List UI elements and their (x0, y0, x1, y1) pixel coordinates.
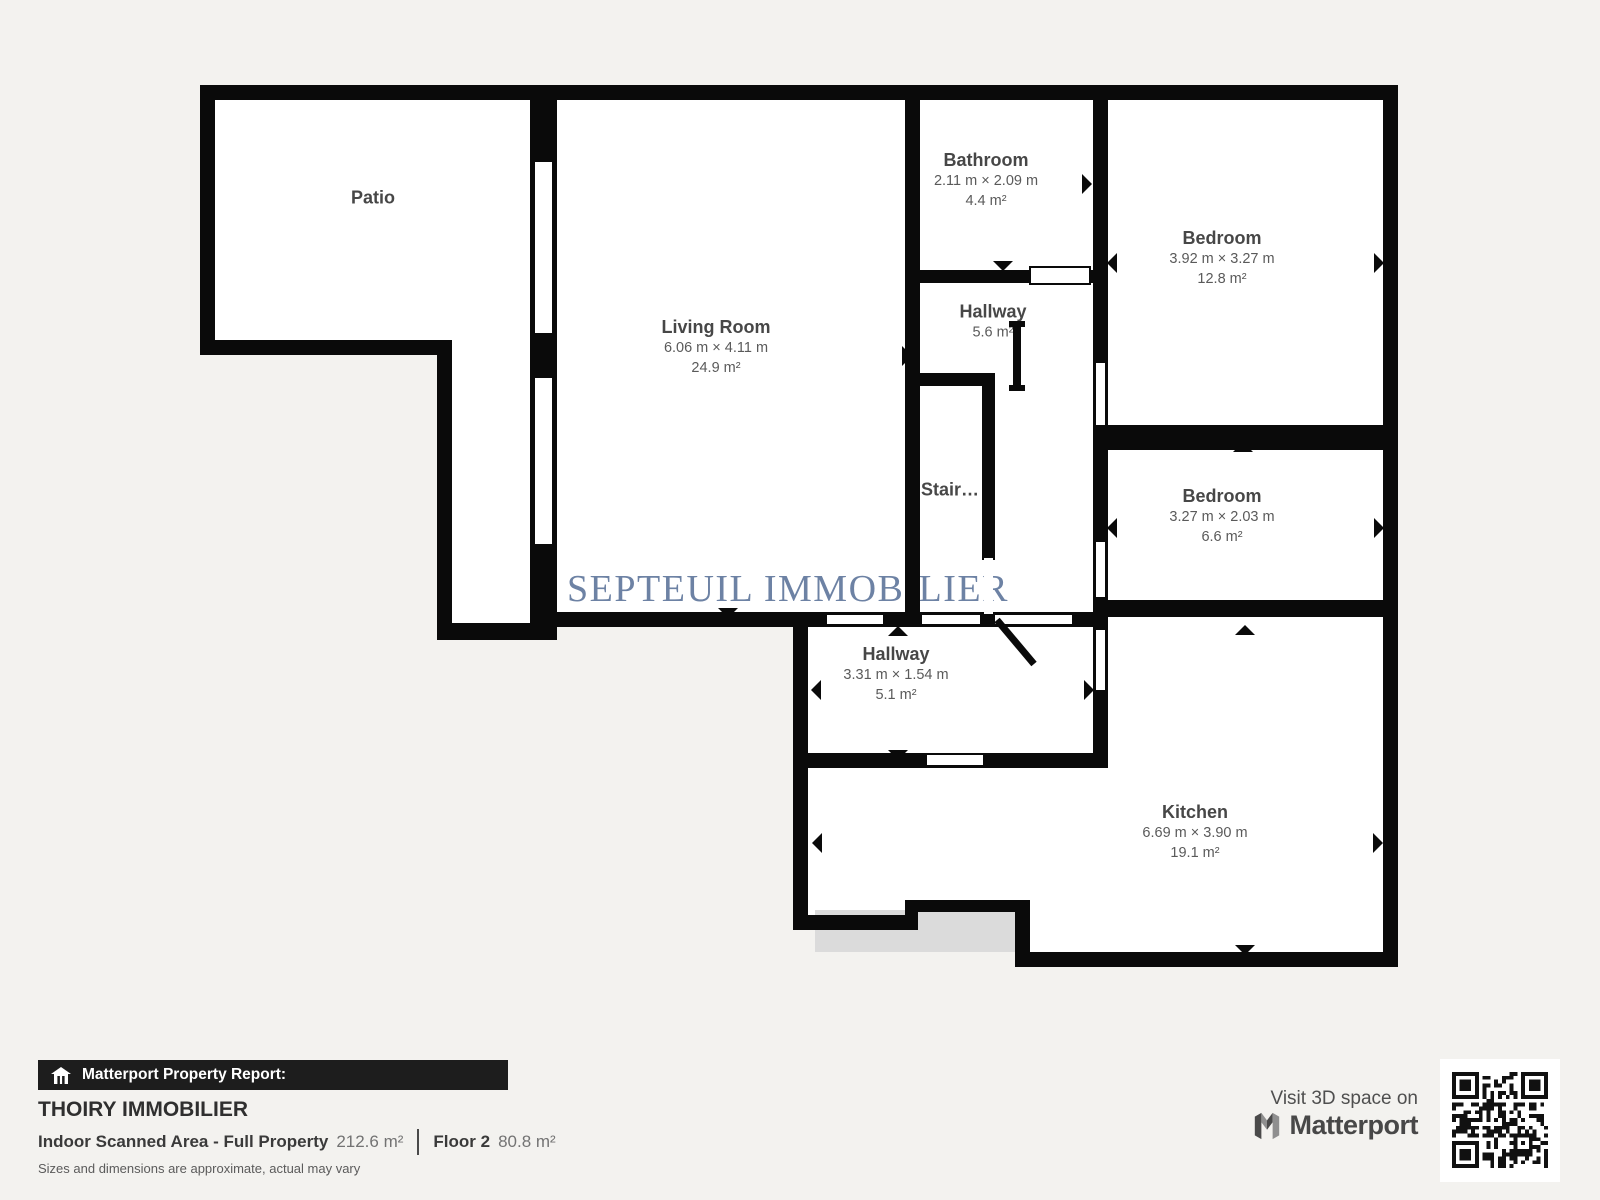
patio-extension-wall (437, 340, 452, 640)
hallway-south-door (927, 755, 983, 765)
hallway-west-wall (793, 612, 808, 930)
stairs-north-wall (905, 373, 995, 386)
room-label-bedroom-1: Bedroom 3.92 m × 3.27 m 12.8 m² (1169, 227, 1274, 289)
bedroom1-door (1096, 363, 1105, 425)
hallway-east-door (1096, 630, 1105, 690)
hallway-north-door (922, 615, 980, 624)
bedroom2-door (1096, 542, 1105, 597)
kitchen-step-wall-b (905, 900, 1030, 912)
watermark: SEPTEUIL IMMOBILIER (567, 568, 1009, 610)
kitchen-south-wall-right (1015, 952, 1398, 967)
door-leaf-icon (1009, 385, 1025, 391)
report-header-bar: Matterport Property Report: (38, 1060, 508, 1090)
stairs-door (984, 558, 993, 614)
exterior-wall-right (1383, 85, 1398, 967)
hallway-north-door (827, 615, 883, 624)
room-label-bathroom: Bathroom 2.11 m × 2.09 m 4.4 m² (934, 149, 1038, 211)
kitchen-south-wall-left (793, 915, 918, 930)
floor-label: Floor 2 (433, 1132, 490, 1152)
window (535, 378, 552, 544)
scanned-area-label: Indoor Scanned Area - Full Property (38, 1132, 328, 1152)
patio-wall-left (200, 85, 215, 355)
exterior-wall-top (200, 85, 1398, 100)
area-stats: Indoor Scanned Area - Full Property 212.… (38, 1129, 556, 1155)
property-name: THOIRY IMMOBILIER (38, 1098, 248, 1122)
patio-wall-bottom (200, 340, 452, 355)
room-label-patio: Patio (351, 186, 395, 209)
hallway-swing-door-opening (995, 615, 1072, 624)
qr-code[interactable] (1440, 1059, 1560, 1182)
room-label-stairs: Stair… (921, 478, 979, 501)
floor-area-value: 80.8 m² (498, 1132, 556, 1152)
door-leaf-icon (1009, 321, 1025, 327)
room-label-hallway-lower: Hallway 3.31 m × 1.54 m 5.1 m² (843, 643, 948, 705)
scanned-area-value: 212.6 m² (336, 1132, 403, 1152)
door-leaf-icon (1013, 325, 1021, 387)
disclaimer-text: Sizes and dimensions are approximate, ac… (38, 1161, 360, 1176)
stairs-east-wall (982, 373, 995, 560)
matterport-m-logo-icon (1252, 1111, 1282, 1141)
stats-divider (417, 1129, 419, 1155)
room-label-kitchen: Kitchen 6.69 m × 3.90 m 19.1 m² (1142, 801, 1247, 863)
matterport-floor-plan-report: SEPTEUIL IMMOBILIER (0, 0, 1600, 1200)
patio-floor (215, 100, 530, 623)
floor-plan-drawing: SEPTEUIL IMMOBILIER (0, 0, 1600, 1200)
house-icon (51, 1067, 71, 1084)
visit-3d-text: Visit 3D space on (1270, 1088, 1418, 1110)
report-bar-label: Matterport Property Report: (82, 1066, 286, 1084)
room-label-bedroom-2: Bedroom 3.27 m × 2.03 m 6.6 m² (1169, 485, 1274, 547)
window (535, 162, 552, 333)
matterport-wordmark: Matterport (1290, 1110, 1419, 1141)
room-label-living-room: Living Room 6.06 m × 4.11 m 24.9 m² (662, 316, 771, 378)
qr-code-pattern (1452, 1072, 1548, 1168)
bathroom-door (1030, 267, 1090, 284)
matterport-link[interactable]: Matterport (1252, 1110, 1419, 1141)
